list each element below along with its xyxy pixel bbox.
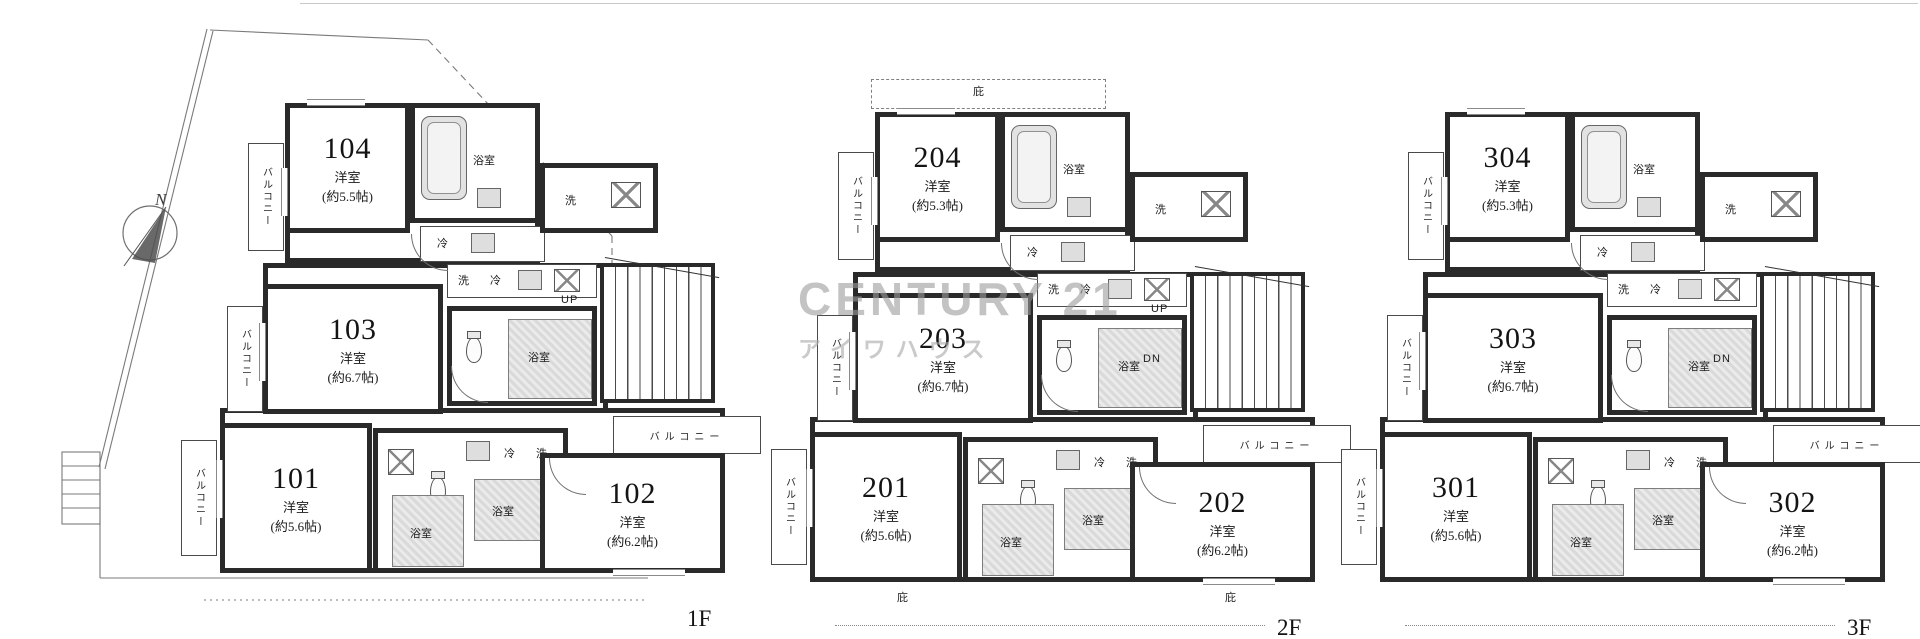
bathroom-top: 浴室 [1570,112,1700,232]
laundry-nook: 洗冷 [1607,273,1757,307]
balcony: バルコニー [613,416,761,454]
laundry-nook: 洗冷 [447,264,597,298]
bath-label: 浴室 [1652,512,1674,528]
compass-north-label: N [155,190,166,210]
balcony: バルコニー [1203,425,1351,463]
bath-label: 浴室 [473,152,495,168]
cross-hatch-icon [1771,191,1801,217]
room-type-label: 洋室 [924,176,950,195]
window [849,332,856,390]
stair-up-label: UP [1151,303,1168,315]
balcony: バルコニー [1387,315,1423,421]
cross-hatch-icon [1201,191,1231,217]
balcony: バルコニー [817,315,853,421]
appliance-icon [1637,197,1661,217]
bath-label: 浴室 [1063,161,1085,177]
cross-hatch-icon [978,458,1004,484]
cross-hatch-icon [611,182,641,208]
balcony: バルコニー [1773,425,1920,463]
window [871,177,878,225]
room-number: 101 [272,462,320,496]
window [1419,332,1426,390]
fridge-label: 冷 [1080,281,1091,297]
room-number: 301 [1432,471,1480,505]
room-size-label: (約5.5帖) [322,186,373,205]
room-103: 103洋室(約6.7帖) [263,284,443,414]
external-steps [62,452,100,524]
room-number: 103 [329,313,377,347]
bath-label: 浴室 [1000,534,1022,550]
bath-zone [1098,328,1182,408]
eaves-top-label: 庇 [973,83,984,99]
room-201: 201洋室(約5.6帖) [810,432,962,582]
room-204: 204洋室(約5.3帖) [875,112,1000,242]
room-type-label: 洋室 [1494,176,1520,195]
fridge-label: 冷 [504,445,515,461]
room-number: 201 [862,471,910,505]
window [1203,578,1275,585]
eaves-bottom-label: 庇 [897,589,908,605]
laundry-nook: 洗冷 [1037,273,1187,307]
room-size-label: (約5.6帖) [861,525,912,544]
bath-label: 浴室 [1633,161,1655,177]
appliance-icon [1067,197,1091,217]
room-type-label: 洋室 [1443,506,1469,525]
washer-label: 洗 [1155,201,1166,217]
fridge-label: 冷 [1650,281,1661,297]
room-size-label: (約5.3帖) [1482,195,1533,214]
room-number: 104 [324,132,372,166]
floor-label-2F: 2F [1277,615,1301,639]
staircase [1760,272,1875,412]
room-type-label: 洋室 [340,348,366,367]
bathroom-top: 浴室 [1000,112,1130,232]
floor-label-3F: 3F [1847,615,1871,639]
bath-zone [508,319,592,399]
balcony: バルコニー [248,143,284,251]
stair-diagonal-line [605,257,719,278]
toilet-icon [1626,346,1642,372]
window [307,99,365,106]
stair-diagonal-line [1765,266,1879,287]
dimension-line [835,625,1265,626]
window [1467,108,1525,115]
room-size-label: (約5.6帖) [1431,525,1482,544]
balcony: バルコニー [1408,152,1444,260]
room-size-label: (約6.7帖) [918,376,969,395]
bath-label: 浴室 [1082,512,1104,528]
floorplan-sheet: N 冷洗冷浴室洗浴室冷洗浴室浴室UP104洋室(約5.5帖)103洋室(約6.7… [0,0,1920,639]
bath-zone [1668,328,1752,408]
cross-hatch-icon [1714,278,1740,301]
room-size-label: (約6.2帖) [1767,540,1818,559]
room-type-label: 洋室 [1779,521,1805,540]
window [1773,578,1845,585]
bathroom-bottom: 冷洗浴室浴室 [1533,437,1728,582]
appliance-icon [1631,242,1655,262]
cross-hatch-icon [554,269,580,292]
fridge-label: 冷 [1094,454,1105,470]
appliance-icon [471,233,495,253]
window [1441,177,1448,225]
washer-label: 洗 [1725,201,1736,217]
room-number: 302 [1769,486,1817,520]
washer-label: 洗 [458,272,469,288]
balcony: バルコニー [771,449,807,565]
balcony-label: バルコニー [1240,437,1315,452]
appliance-icon [1678,279,1702,299]
stair-dn-label: DN [1143,353,1161,365]
floor-plan-1F: 冷洗冷浴室洗浴室冷洗浴室浴室UP104洋室(約5.5帖)103洋室(約6.7帖)… [215,68,760,639]
stair-dn-label: DN [1713,353,1731,365]
fridge-label: 冷 [490,272,501,288]
washer-label: 洗 [1048,281,1059,297]
eaves-bottom-label: 庇 [1225,589,1236,605]
room-size-label: (約5.3帖) [912,195,963,214]
balcony: バルコニー [227,306,263,412]
room-301: 301洋室(約5.6帖) [1380,432,1532,582]
bath-label: 浴室 [1688,358,1710,374]
room-type-label: 洋室 [334,167,360,186]
appliance-icon [1108,279,1132,299]
appliance-icon [518,270,542,290]
staircase [600,263,715,403]
room-type-label: 洋室 [873,506,899,525]
balcony-label: バルコニー [259,167,274,227]
cross-hatch-icon [388,449,414,475]
balcony-label: バルコニー [828,338,843,398]
room-size-label: (約5.6帖) [271,516,322,535]
cross-hatch-icon [1144,278,1170,301]
balcony-label: バルコニー [1419,176,1434,236]
room-203: 203洋室(約6.7帖) [853,293,1033,423]
room-type-label: 洋室 [1209,521,1235,540]
balcony-label: バルコニー [1398,338,1413,398]
floor-label-1F: 1F [687,606,711,632]
balcony-label: バルコニー [1810,437,1885,452]
appliance-icon [1626,450,1650,470]
compass-icon [123,206,177,266]
room-101: 101洋室(約5.6帖) [220,423,372,573]
bathroom-top: 浴室 [410,103,540,223]
room-size-label: (約6.2帖) [607,531,658,550]
toilet-icon [1056,346,1072,372]
room-303: 303洋室(約6.7帖) [1423,293,1603,423]
room-number: 304 [1484,141,1532,175]
stair-up-label: UP [561,294,578,306]
floor-plan-2F: 庇冷洗冷浴室洗浴室冷洗浴室浴室UPDN204洋室(約5.3帖)203洋室(約6.… [805,77,1350,639]
room-size-label: (約6.7帖) [328,367,379,386]
balcony-label: バルコニー [650,428,725,443]
floor-plan-3F: 冷洗冷浴室洗浴室冷洗浴室浴室DN304洋室(約5.3帖)303洋室(約6.7帖)… [1375,77,1920,639]
washer-label: 洗 [1618,281,1629,297]
bath-label: 浴室 [1118,358,1140,374]
window [216,460,223,518]
room-number: 204 [914,141,962,175]
appliance-icon [466,441,490,461]
balcony-label: バルコニー [1352,477,1367,537]
bath-label: 浴室 [1570,534,1592,550]
room-number: 303 [1489,322,1537,356]
window [806,469,813,527]
washroom-top: 洗 [1700,172,1818,242]
room-size-label: (約6.7帖) [1488,376,1539,395]
window [897,108,955,115]
balcony-label: バルコニー [192,468,207,528]
appliance-icon [1061,242,1085,262]
washroom-top: 洗 [540,163,658,233]
room-type-label: 洋室 [930,357,956,376]
stair-diagonal-line [1195,266,1309,287]
dimension-line [1405,625,1835,626]
balcony: バルコニー [838,152,874,260]
toilet-icon [466,337,482,363]
appliance-icon [477,188,501,208]
room-number: 202 [1199,486,1247,520]
bathtub-icon [1581,125,1627,209]
bathtub-icon [1011,125,1057,209]
room-type-label: 洋室 [283,497,309,516]
bath-label: 浴室 [528,349,550,365]
staircase [1190,272,1305,412]
bath-label: 浴室 [410,525,432,541]
balcony: バルコニー [1341,449,1377,565]
window [281,168,288,216]
window [613,569,685,576]
window [259,323,266,381]
room-304: 304洋室(約5.3帖) [1445,112,1570,242]
eaves-outline [871,79,1106,109]
balcony-label: バルコニー [849,176,864,236]
cross-hatch-icon [1548,458,1574,484]
room-type-label: 洋室 [619,512,645,531]
washroom-top: 洗 [1130,172,1248,242]
bathroom-bottom: 冷洗浴室浴室 [963,437,1158,582]
room-size-label: (約6.2帖) [1197,540,1248,559]
appliance-icon [1056,450,1080,470]
room-number: 102 [609,477,657,511]
room-104: 104洋室(約5.5帖) [285,103,410,233]
window [1376,469,1383,527]
balcony: バルコニー [181,440,217,556]
room-number: 203 [919,322,967,356]
washer-label: 洗 [565,192,576,208]
bath-label: 浴室 [492,503,514,519]
balcony-label: バルコニー [238,329,253,389]
bathroom-bottom: 冷洗浴室浴室 [373,428,568,573]
bathtub-icon [421,116,467,200]
fridge-label: 冷 [1664,454,1675,470]
balcony-label: バルコニー [782,477,797,537]
room-type-label: 洋室 [1500,357,1526,376]
